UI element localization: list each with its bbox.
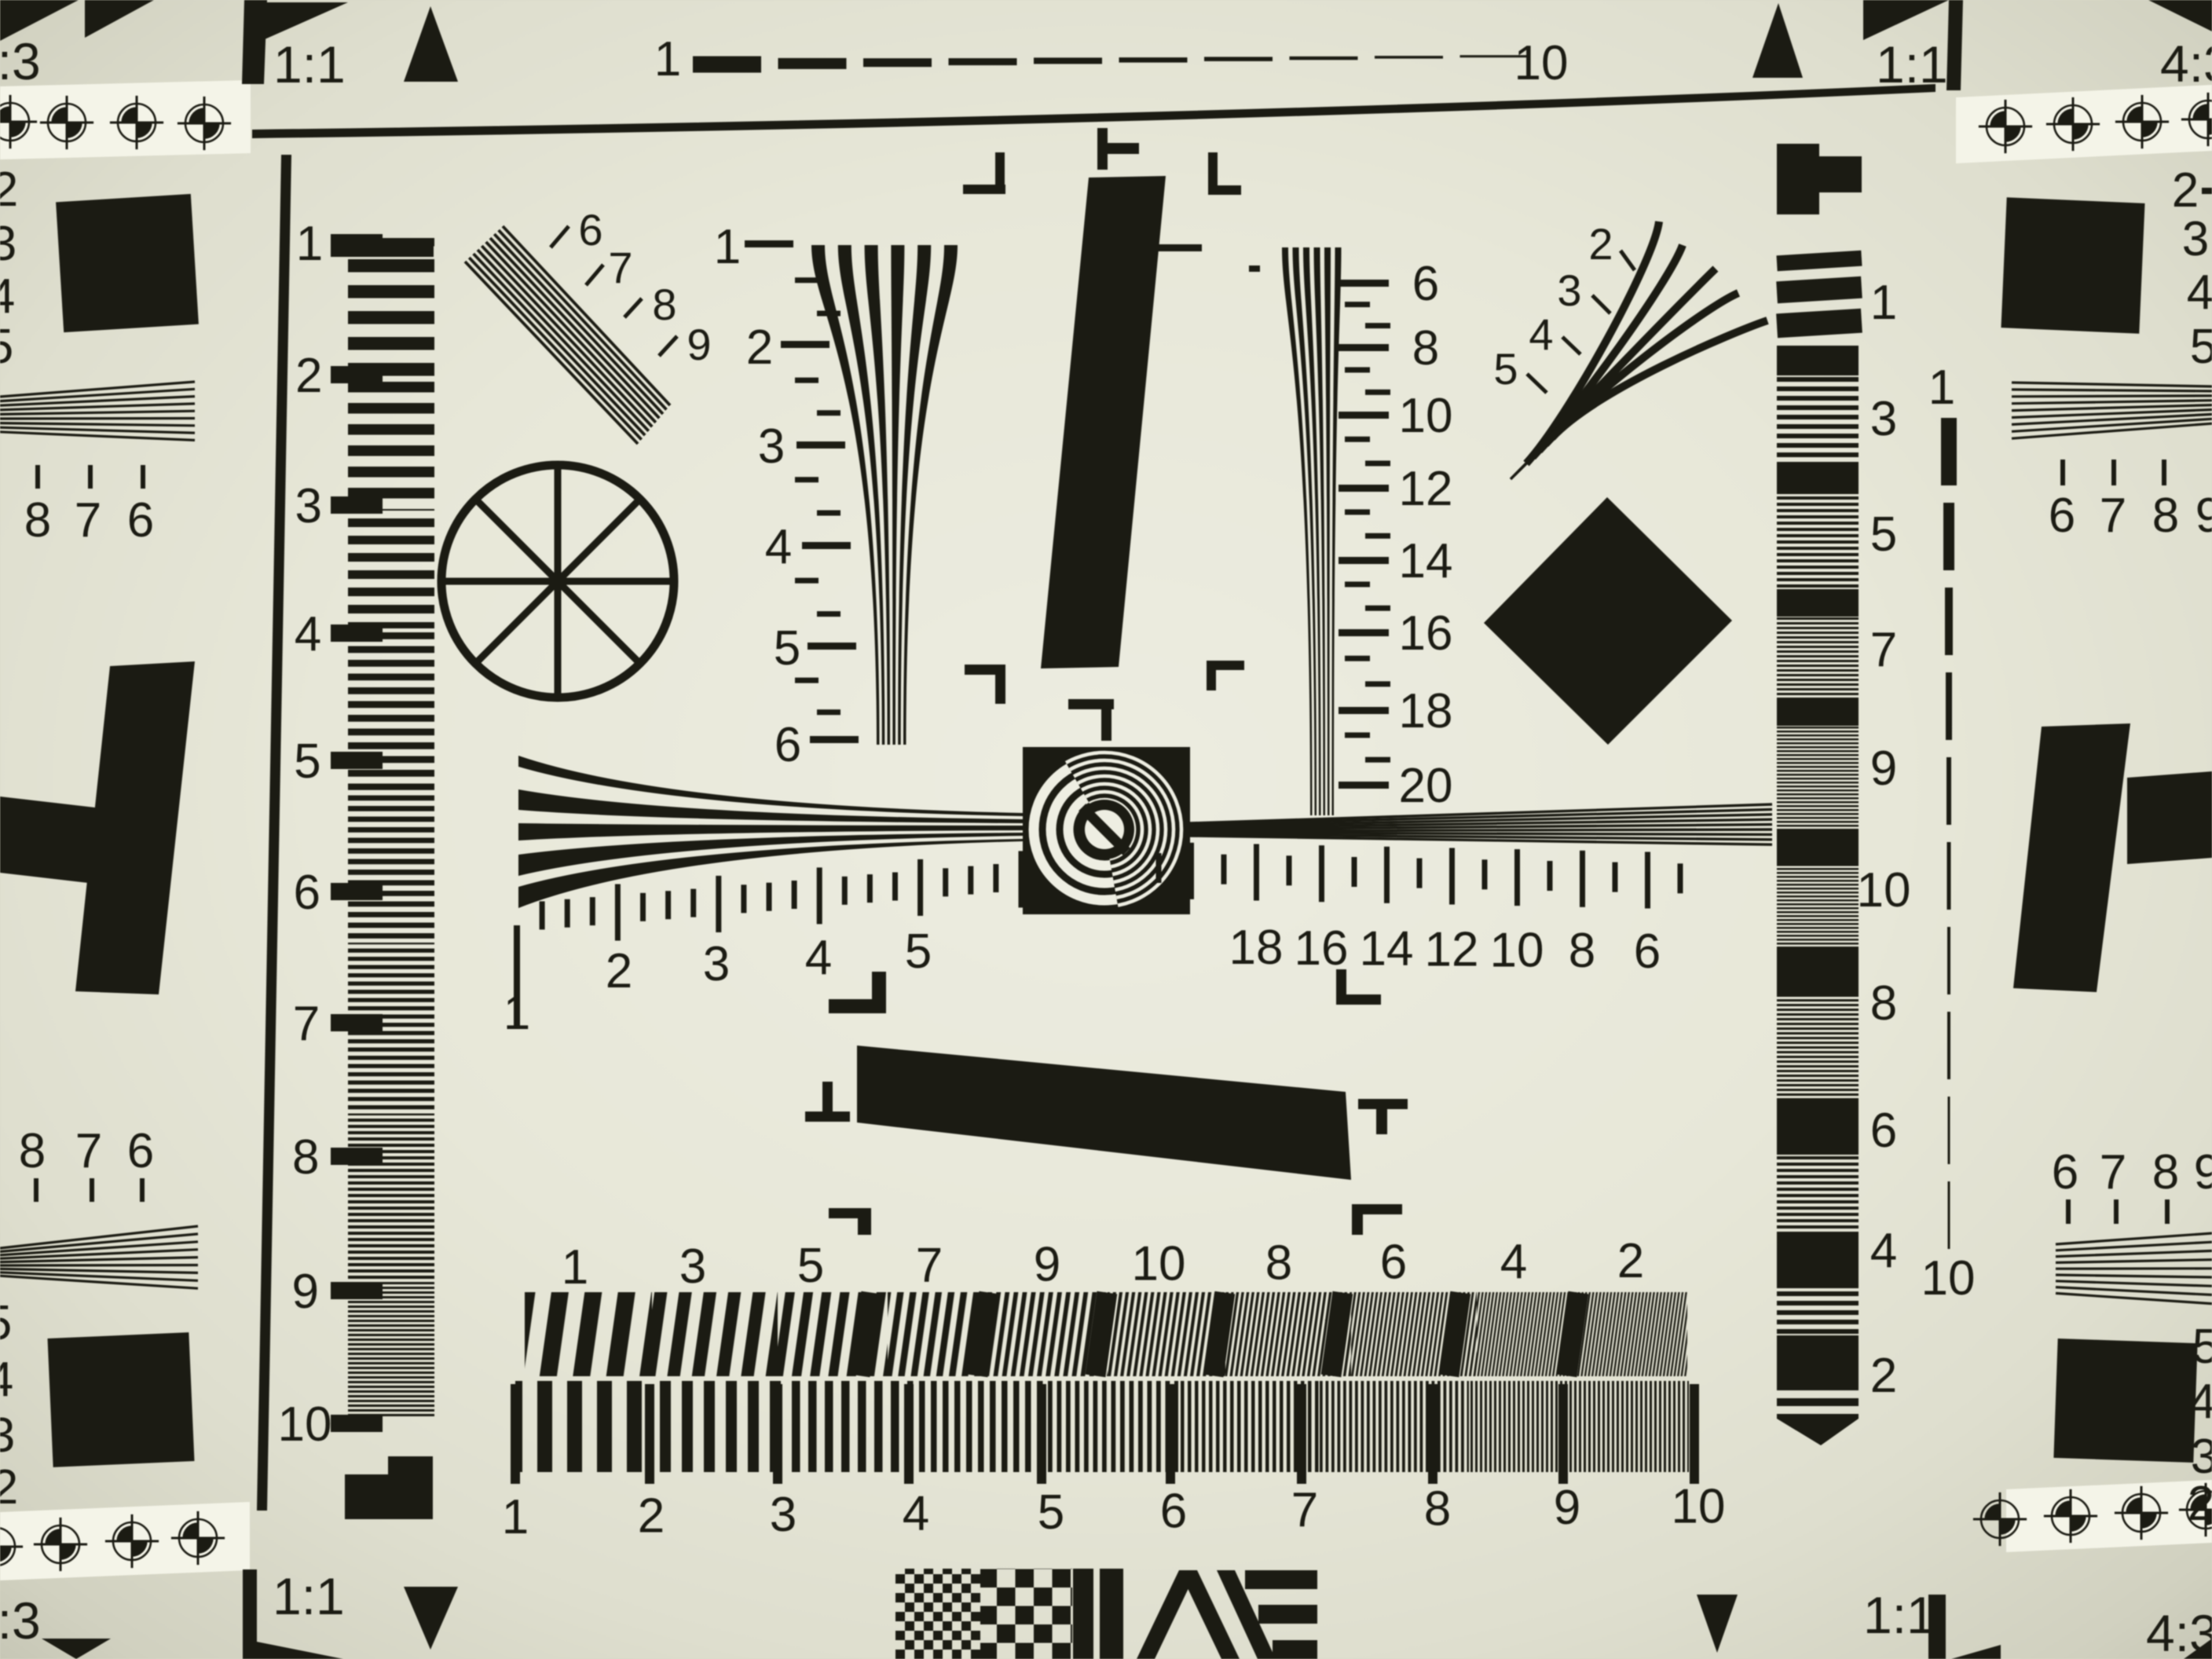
svg-text:2: 2 xyxy=(0,1460,18,1514)
svg-text:12: 12 xyxy=(1399,462,1453,516)
svg-text:12: 12 xyxy=(1425,923,1479,977)
svg-text:5: 5 xyxy=(797,1239,824,1293)
svg-text:1: 1 xyxy=(1870,276,1897,330)
svg-text:20: 20 xyxy=(1399,759,1453,813)
svg-text:4: 4 xyxy=(765,520,792,574)
svg-text:5: 5 xyxy=(774,621,800,676)
svg-text:8: 8 xyxy=(24,493,51,548)
svg-text:3: 3 xyxy=(2191,1430,2212,1484)
svg-text:3: 3 xyxy=(679,1240,706,1294)
svg-text:8: 8 xyxy=(292,1130,319,1185)
svg-text:5: 5 xyxy=(0,320,13,374)
svg-text:9: 9 xyxy=(1554,1481,1580,1535)
svg-text:14: 14 xyxy=(1360,922,1414,976)
svg-text:7: 7 xyxy=(916,1238,943,1292)
svg-text:8: 8 xyxy=(1412,321,1439,375)
svg-text:7: 7 xyxy=(75,1124,102,1178)
svg-text:6: 6 xyxy=(1160,1485,1187,1539)
svg-text:5: 5 xyxy=(1493,344,1518,394)
svg-text:10: 10 xyxy=(1921,1251,1976,1306)
svg-text:5: 5 xyxy=(905,925,932,979)
svg-text:3: 3 xyxy=(703,937,730,991)
svg-text:1: 1 xyxy=(504,986,530,1040)
svg-text:5: 5 xyxy=(2192,1320,2212,1374)
svg-text:1:1: 1:1 xyxy=(273,35,346,93)
svg-text:8: 8 xyxy=(652,280,676,329)
svg-text:4: 4 xyxy=(295,607,321,661)
svg-text:7: 7 xyxy=(2100,489,2126,543)
svg-text:16: 16 xyxy=(1399,606,1453,661)
svg-text:1: 1 xyxy=(502,1490,529,1544)
svg-text:8: 8 xyxy=(1265,1236,1292,1291)
svg-text:3: 3 xyxy=(295,479,321,533)
svg-text:4: 4 xyxy=(0,1353,13,1407)
svg-text:3: 3 xyxy=(0,217,16,271)
svg-text:8: 8 xyxy=(2152,489,2179,543)
svg-text:4: 4 xyxy=(805,931,832,985)
svg-text:7: 7 xyxy=(1870,623,1897,677)
svg-text:2: 2 xyxy=(1870,1349,1897,1403)
svg-text:7: 7 xyxy=(608,243,632,292)
svg-text:5: 5 xyxy=(0,1296,12,1350)
svg-text:4: 4 xyxy=(2189,1375,2212,1429)
svg-text:9: 9 xyxy=(2194,1145,2212,1199)
svg-text:18: 18 xyxy=(1229,921,1284,975)
svg-text:10: 10 xyxy=(278,1397,332,1452)
svg-text:2: 2 xyxy=(638,1489,665,1543)
svg-text:10: 10 xyxy=(1490,923,1544,977)
svg-text:16: 16 xyxy=(1295,921,1349,976)
svg-text:4:3: 4:3 xyxy=(0,1591,41,1650)
svg-text:10: 10 xyxy=(1132,1237,1186,1291)
svg-text:4: 4 xyxy=(2187,266,2212,320)
svg-text:1:1: 1:1 xyxy=(1863,1586,1935,1644)
svg-text:2: 2 xyxy=(295,349,322,403)
svg-text:6: 6 xyxy=(127,1124,154,1178)
svg-text:1: 1 xyxy=(1928,361,1955,415)
svg-text:6: 6 xyxy=(1634,925,1661,979)
svg-text:6: 6 xyxy=(1412,257,1439,311)
svg-text:10: 10 xyxy=(1857,863,1911,917)
svg-text:8: 8 xyxy=(1424,1481,1451,1536)
svg-text:1: 1 xyxy=(296,217,323,271)
svg-text:6: 6 xyxy=(293,866,320,920)
svg-text:1:1: 1:1 xyxy=(273,1567,345,1625)
svg-text:6: 6 xyxy=(1870,1104,1897,1158)
svg-text:2: 2 xyxy=(2188,1477,2212,1531)
svg-text:3: 3 xyxy=(1557,266,1581,315)
svg-text:4: 4 xyxy=(0,269,15,324)
svg-text:9: 9 xyxy=(291,1265,318,1319)
svg-text:1: 1 xyxy=(714,220,741,274)
svg-text:2: 2 xyxy=(606,944,632,998)
svg-text:1:1: 1:1 xyxy=(1876,35,1948,93)
svg-text:3: 3 xyxy=(758,419,785,474)
svg-text:2: 2 xyxy=(0,163,18,217)
svg-text:10: 10 xyxy=(1399,389,1453,443)
svg-text:9: 9 xyxy=(1870,742,1897,796)
svg-text:10: 10 xyxy=(1672,1479,1726,1533)
svg-text:4: 4 xyxy=(1870,1224,1897,1278)
svg-text:7: 7 xyxy=(293,997,320,1051)
svg-text:5: 5 xyxy=(294,734,320,789)
svg-text:1: 1 xyxy=(1124,220,1151,274)
svg-text:10: 10 xyxy=(1514,36,1569,90)
svg-text:5: 5 xyxy=(1038,1485,1064,1540)
svg-text:5: 5 xyxy=(1870,507,1897,562)
svg-text:1: 1 xyxy=(654,32,681,86)
svg-text:3: 3 xyxy=(2182,212,2209,266)
svg-text:3: 3 xyxy=(0,1408,15,1463)
svg-text:14: 14 xyxy=(1399,534,1453,588)
svg-text:6: 6 xyxy=(2052,1145,2078,1199)
svg-text:4: 4 xyxy=(1500,1235,1527,1289)
svg-text:4: 4 xyxy=(1529,309,1553,359)
svg-text:3: 3 xyxy=(770,1488,797,1542)
svg-text:7: 7 xyxy=(2100,1145,2126,1199)
svg-text:6: 6 xyxy=(1380,1236,1407,1290)
svg-text:6: 6 xyxy=(2049,489,2075,543)
svg-text:2: 2 xyxy=(1588,219,1613,269)
svg-text:4: 4 xyxy=(903,1486,929,1540)
svg-text:1: 1 xyxy=(562,1240,588,1295)
svg-text:2: 2 xyxy=(746,320,773,375)
svg-text:9: 9 xyxy=(1034,1237,1060,1291)
svg-text:8: 8 xyxy=(1870,976,1897,1031)
svg-text:8: 8 xyxy=(19,1124,46,1178)
svg-text:5: 5 xyxy=(2190,320,2212,374)
svg-text:6: 6 xyxy=(578,205,602,255)
svg-text:8: 8 xyxy=(1569,924,1595,978)
svg-text:6: 6 xyxy=(127,493,154,548)
svg-text:2: 2 xyxy=(1617,1234,1644,1288)
svg-text:9: 9 xyxy=(687,320,711,369)
svg-text:9: 9 xyxy=(2196,489,2212,543)
svg-text:4:3: 4:3 xyxy=(2160,35,2212,93)
svg-text:7: 7 xyxy=(1291,1483,1318,1537)
svg-text:7: 7 xyxy=(75,493,101,548)
svg-text:18: 18 xyxy=(1399,684,1453,738)
svg-text:4:3: 4:3 xyxy=(0,32,41,90)
svg-text:6: 6 xyxy=(775,718,801,772)
svg-text:2: 2 xyxy=(2172,163,2199,218)
svg-text:8: 8 xyxy=(2152,1145,2179,1199)
svg-text:3: 3 xyxy=(1870,392,1897,446)
